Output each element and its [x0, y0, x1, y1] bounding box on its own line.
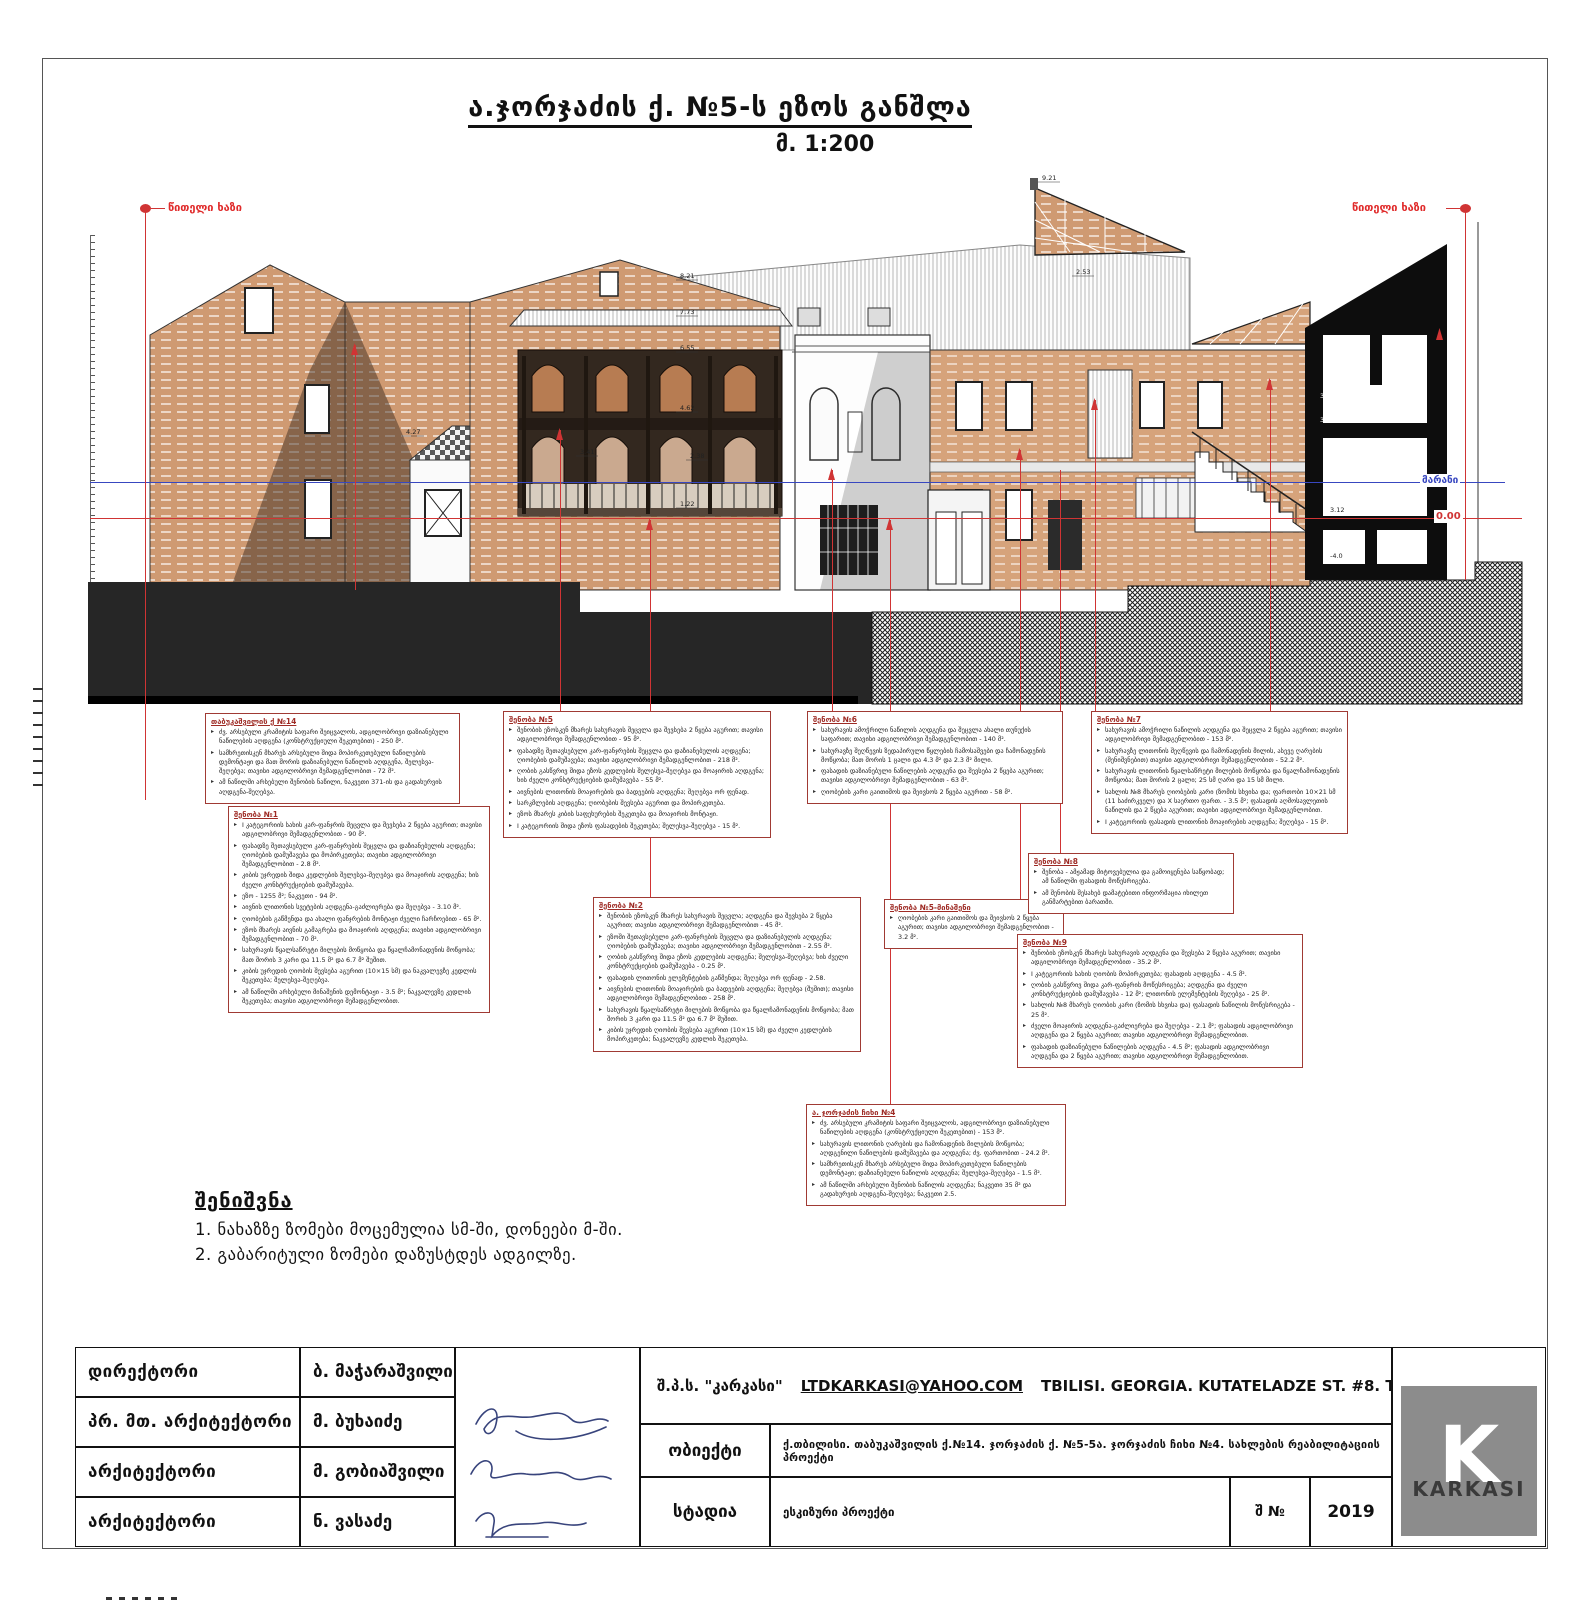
annotation-bullet: ეზოში შეთავსებული კარ-ფანჯრების შეცვლა დ…: [599, 933, 855, 952]
annotation-bullet: ფასადის დაზიანებული ნაწილების აღდგენა - …: [1023, 1043, 1297, 1062]
karkasi-logo: K KARKASI: [1401, 1386, 1537, 1536]
connector-line: [1270, 380, 1271, 711]
annotation-bullet: ძველი მოაჯირის აღდგენა-გაძლიერება და შეღ…: [1023, 1022, 1297, 1041]
svg-text:9.21: 9.21: [1042, 174, 1056, 182]
annotation-bullet: ღობის გასწვრივ შიდა ეზოს კედლების აღდგენ…: [599, 953, 855, 972]
stage-label: სტადია: [641, 1502, 769, 1522]
note-line-1: 1. ნახაზზე ზომები მოცემულია სმ-ში, დონეე…: [195, 1218, 755, 1243]
marani-level-label: მარანი: [1420, 474, 1460, 487]
annotation-bullet: კიბის უჯრედის ღიობის შევსება აგურით (10×…: [599, 1026, 855, 1045]
zero-level-line: [90, 518, 1522, 519]
connector-line: [832, 470, 833, 711]
stage-value: ესკიზური პროექტი: [783, 1505, 894, 1519]
annotation-bullet: ძვ. არსებული კრამიტის საფარი შეიცვალოს, …: [211, 728, 454, 747]
red-property-line-left: [145, 205, 146, 800]
annotation-bullet: სახურავის ამოჭრილი ნაწილის აღდგენა და შე…: [813, 726, 1057, 745]
annotation-box-jorjadze-lane-4: ა. ჯორჯაძის ჩიხი №4 ძვ. არსებული კრამიტი…: [806, 1104, 1066, 1206]
annotation-bullet: სახურავის ლითონის ღარების და ჩამონადენის…: [812, 1140, 1060, 1159]
annotation-bullet: I კატეგორიის სახის ღიობის მოპირკეთება; ფ…: [1023, 970, 1297, 979]
role-director: დირექტორი: [88, 1362, 199, 1382]
zero-level-label: 0.00: [1434, 510, 1463, 523]
connector-line: [1095, 400, 1096, 711]
name-director: ბ. მაჭარაშვილი: [313, 1362, 453, 1382]
annotation-bullet: სამხრეთისკენ მხარეს არსებული შიდა მოპირკ…: [211, 749, 454, 777]
annotation-bullet: ღიობების გაწმენდა და ახალი ფანჯრების მონ…: [234, 915, 484, 924]
annotation-bullet: სახლის №8 მხარეს ღიობის კარი (ზომის სხვი…: [1023, 1001, 1297, 1020]
building-balcony-gable: [470, 260, 792, 590]
annotation-bullet: კიბის უჯრედის ღიობის შევსება აგურით (10×…: [234, 967, 484, 986]
connector-line: [355, 345, 356, 590]
notes-title: შენიშვნა: [195, 1188, 755, 1212]
signature-gobiashvili: [471, 1461, 611, 1480]
name-chief-architect: მ. ბუხაიძე: [313, 1412, 402, 1432]
notes-section: შენიშვნა 1. ნახაზზე ზომები მოცემულია სმ-…: [195, 1188, 755, 1268]
annotation-bullet: ძვ. არსებული კრამიტის საფარი შეიცვალოს, …: [812, 1119, 1060, 1138]
edge-tick-marks-left: [33, 688, 43, 796]
role-architect-1: არქიტექტორი: [88, 1462, 216, 1482]
annotation-bullet: სახურავის ლითონის წყალსაწრეტი მილების მო…: [1097, 767, 1342, 786]
svg-text:3.24: 3.24: [1320, 392, 1334, 400]
annotation-bullet: ფასადზე შეთავსებული კარ-ფანჯრების შეცვლა…: [234, 842, 484, 870]
annotation-box-building-2: შენობა №2 შენობის ეზოსკენ მხარეს სახურავ…: [593, 897, 861, 1052]
annotation-bullet: ამ ნაწილში არსებული შენობის ნაწილი, ნაკვ…: [211, 778, 454, 797]
role-architect-2: არქიტექტორი: [88, 1512, 216, 1532]
name-architect-2: ნ. ვასაძე: [313, 1512, 392, 1532]
signatures: [456, 1349, 638, 1545]
drawing-scale: მ. 1:200: [545, 132, 1105, 157]
svg-text:6.55: 6.55: [680, 344, 694, 352]
logo-text: KARKASI: [1412, 1477, 1525, 1501]
svg-text:3.12: 3.12: [1330, 506, 1344, 514]
connector-line: [560, 430, 561, 712]
annotation-bullet: სახურავზე შეღწევის ზედაპირული წყლების ჩა…: [813, 747, 1057, 766]
annotation-bullet: ეზო - 1255 მ²; ნაკვეთი - 94 მ².: [234, 892, 484, 901]
gate-kiosk: [928, 490, 990, 590]
annotation-bullet: აივნების ლითონის მოაჯირების და ბადეების …: [509, 788, 765, 797]
role-chief-architect: პრ. მთ. არქიტექტორი: [88, 1412, 292, 1432]
annotation-bullet: ფასადის დაზიანებული ნაწილების აღდგენა და…: [813, 767, 1057, 786]
company-name: შ.პ.ს. "კარკასი": [657, 1377, 783, 1395]
red-line-leader-left: [151, 208, 165, 209]
red-line-marker-right: [1460, 204, 1471, 213]
red-property-line-right: [1465, 205, 1466, 580]
connector-line: [1020, 450, 1021, 934]
annotation-bullet: შენობის ეზოსკენ მხარეს სახურავის შეცვლა;…: [599, 912, 855, 931]
sheet-number-label: შ №: [1231, 1504, 1309, 1520]
svg-text:2.38: 2.38: [690, 452, 704, 460]
signature-vasadze: [476, 1513, 586, 1537]
annotation-box-building-8: შენობა №8 შენობა - ამჟამად მიტოვებულია დ…: [1028, 853, 1234, 914]
annotation-bullet: ღობის გასწვრივ შიდა ეზოს კედლების შელესვ…: [509, 767, 765, 786]
svg-text:4.62: 4.62: [680, 404, 694, 412]
annotation-bullet: ეზოს მხარეს აივნის გამაგრება და მოაჯირის…: [234, 926, 484, 945]
svg-text:8.21: 8.21: [680, 272, 694, 280]
object-label: ობიექტი: [641, 1441, 769, 1461]
annotation-bullet: ამ ნაწილში არსებული შენობის ნაწილის აღდგ…: [812, 1181, 1060, 1200]
annotation-bullet: ღიობების კარი გაითიშოს და შეივსოს 2 წყებ…: [813, 788, 1057, 797]
drawing-sheet: { "sheet": { "title": "ა.ჯორჯაძის ქ. №5-…: [0, 0, 1588, 1614]
edge-tick-marks-bottom: [106, 1597, 178, 1600]
svg-text:3.84: 3.84: [1320, 416, 1334, 424]
annotation-bullet: I კატეგორიის სახის კარ-ფანჯრის შეცვლა და…: [234, 821, 484, 840]
name-architect-1: მ. გობიაშვილი: [313, 1462, 444, 1482]
svg-text:7.73: 7.73: [680, 308, 694, 316]
annotation-bullet: სარკმლების აღდგენა; ღიობების შევსება აგუ…: [509, 799, 765, 808]
note-line-2: 2. გაბარიტული ზომები დაზუსტდეს ადგილზე.: [195, 1243, 755, 1268]
annotation-bullet: სახლის №8 მხარეს ღიობების კარი (ზომის სხ…: [1097, 788, 1342, 816]
annotation-box-building-1: შენობა №1 I კატეგორიის სახის კარ-ფანჯრის…: [228, 806, 490, 1013]
annotation-bullet: სახურავზე ლითონის შეღწევის და ჩამონადენი…: [1097, 747, 1342, 766]
red-line-label-right: წითელი ხაზი: [1352, 201, 1426, 214]
annotation-bullet: ღობის გასწვრივ შიდა კარ-ფანჯრის მოწესრიგ…: [1023, 981, 1297, 1000]
annotation-box-tabukashvili-14: თაბუკაშვილის ქ №14 ძვ. არსებული კრამიტის…: [205, 713, 460, 804]
annotation-bullet: შენობის ეზოსკენ მხარეს სახურავის შეცვლა …: [509, 726, 765, 745]
red-line-leader-right: [1446, 208, 1460, 209]
svg-text:1.22: 1.22: [680, 500, 694, 508]
red-line-label-left: წითელი ხაზი: [168, 201, 242, 214]
annotation-bullet: სახურავის ამოჭრილი ნაწილის აღდგენა და შე…: [1097, 726, 1342, 745]
annotation-bullet: სახურავის წყალსაწრეტი მილების მოწყობა და…: [234, 946, 484, 965]
annotation-box-building-7: შენობა №7 სახურავის ამოჭრილი ნაწილის აღდ…: [1091, 711, 1348, 834]
annotation-bullet: სახურავის წყალსაწრეტი მილების მოწყობა და…: [599, 1006, 855, 1025]
svg-text:2.53: 2.53: [1076, 268, 1090, 276]
annotation-bullet: სამხრეთისკენ მხარეს არსებული შიდა მოპირკ…: [812, 1160, 1060, 1179]
annotation-bullet: I კატეგორიის შიდა ეზოს ფასადების შეკეთებ…: [509, 822, 765, 831]
page-title: ა.ჯორჯაძის ქ. №5-ს ეზოს განშლა: [468, 92, 971, 128]
year-value: 2019: [1311, 1502, 1391, 1522]
annotation-box-building-6: შენობა №6 სახურავის ამოჭრილი ნაწილის აღდ…: [807, 711, 1063, 804]
annotation-box-building-9: შენობა №9 შენობის ეზოსკენ მხარეს სახურავ…: [1017, 934, 1303, 1068]
annotation-bullet: ფასადზე შეთავსებული კარ-ფანჯრების შეცვლა…: [509, 747, 765, 766]
logo-cell: K KARKASI: [1392, 1347, 1546, 1547]
annotation-bullet: I კატეგორიის ფასადის ლითონის მოაჯირების …: [1097, 818, 1342, 827]
connector-line: [890, 520, 891, 1104]
annotation-bullet: შენობის ეზოსკენ მხარეს სახურავის აღდგენა…: [1023, 949, 1297, 968]
company-email: LTDKARKASI@YAHOO.COM: [801, 1377, 1023, 1395]
connector-line: [650, 520, 651, 897]
annotation-box-building-5: შენობა №5 შენობის ეზოსკენ მხარეს სახურავ…: [503, 711, 771, 838]
title-wrap: ა.ჯორჯაძის ქ. №5-ს ეზოს განშლა მ. 1:200: [440, 92, 1000, 157]
elevation-drawing: 8.21 7.73 6.55 4.62 4.27 3.41 2.38 1.22 …: [80, 160, 1530, 710]
annotation-bullet: ეზოს მხარეს კიბის საფეხურების შეკეთება დ…: [509, 810, 765, 819]
red-line-marker-left: [140, 204, 151, 213]
building-classical-center: [792, 308, 933, 590]
annotation-bullet: ფასადის ლითონის ელემენტების გაწმენდა; შე…: [599, 974, 855, 983]
annotation-bullet: აივნის ლითონის სვეტების აღდგენა-გაძლიერე…: [234, 903, 484, 912]
svg-text:-4.0: -4.0: [1330, 552, 1343, 560]
annotation-bullet: შენობა - ამჟამად მიტოვებულია და გამოიყენ…: [1034, 868, 1228, 887]
svg-text:4.27: 4.27: [406, 428, 420, 436]
annotation-bullet: ამ ნაწილში არსებული მინაშენის დემონტაჟი …: [234, 988, 484, 1007]
marani-level-line: [90, 482, 1505, 483]
object-value: ქ.თბილისი. თაბუკაშვილის ქ.№14. ჯორჯაძის …: [783, 1438, 1391, 1464]
svg-text:3.41: 3.41: [580, 448, 594, 456]
signature-bukhaidze: [476, 1409, 608, 1439]
annotation-bullet: კიბის უჯრედის შიდა კედლების შელესვა-შეღე…: [234, 871, 484, 890]
annotation-bullet: აივნების ლითონის მოაჯირების და ბადეების …: [599, 985, 855, 1004]
annotation-bullet: ამ შენობის შესახებ დამატებითი ინფორმაცია…: [1034, 889, 1228, 908]
